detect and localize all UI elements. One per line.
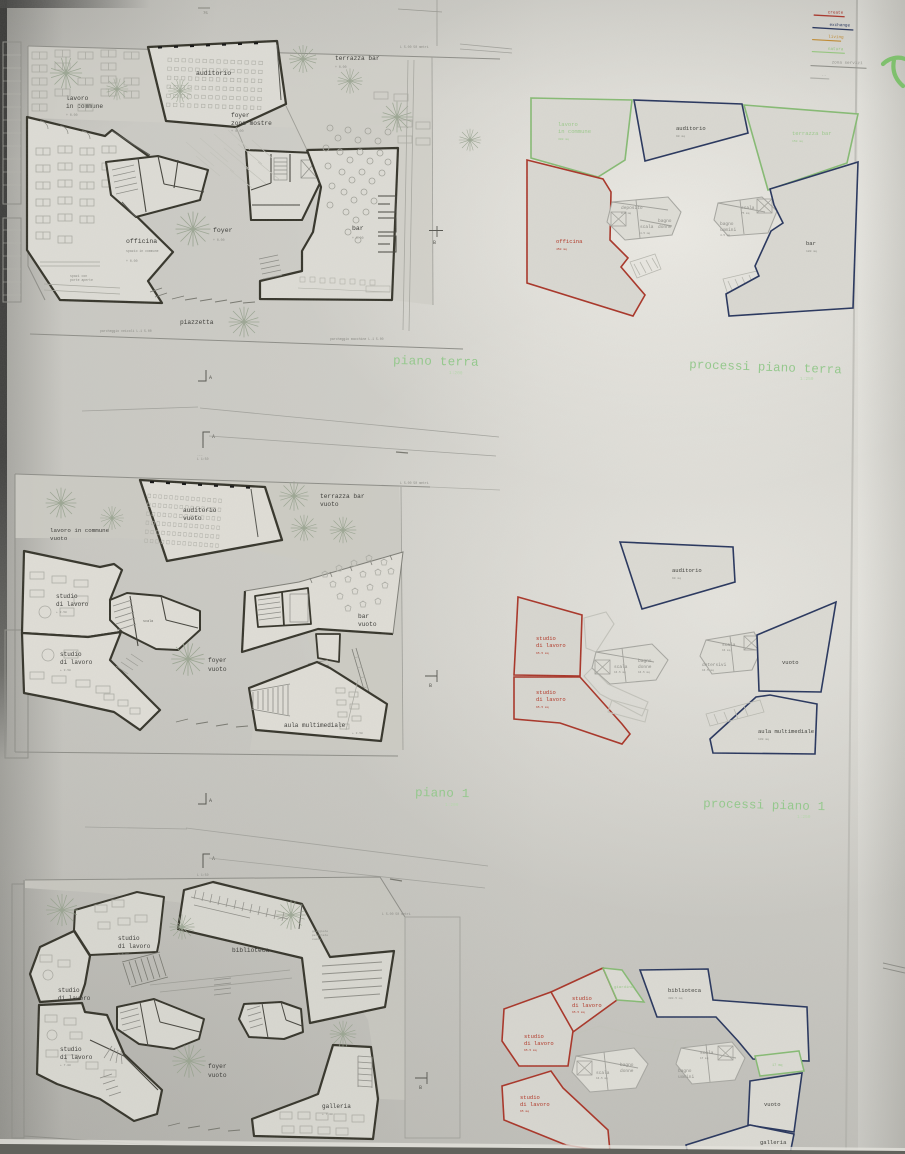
svg-text:75: 75 — [203, 12, 208, 16]
